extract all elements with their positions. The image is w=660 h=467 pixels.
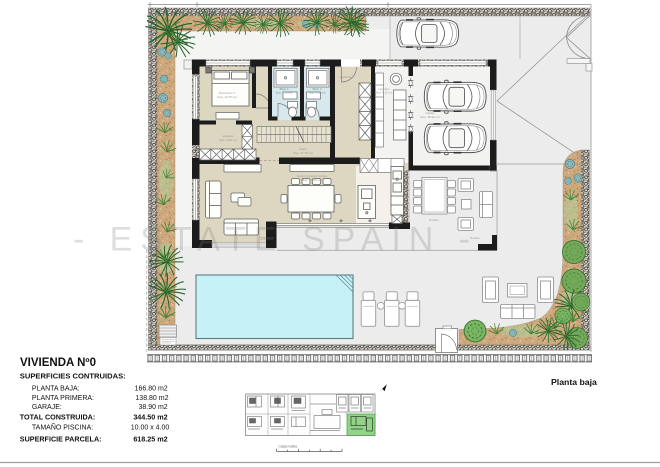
svg-text:Sup. 38.90 m2: Sup. 38.90 m2: [420, 115, 440, 119]
svg-text:TAMAÑO PISCINA:: TAMAÑO PISCINA:: [32, 422, 93, 431]
svg-text:618.25 m2: 618.25 m2: [133, 435, 167, 444]
svg-text:TOTAL CONSTRUIDA:: TOTAL CONSTRUIDA:: [20, 412, 95, 421]
svg-text:Sup. 13.75 m2: Sup. 13.75 m2: [217, 95, 237, 99]
svg-text:PLANTA PRIMERA:: PLANTA PRIMERA:: [32, 395, 94, 402]
svg-text:Planta baja: Planta baja: [551, 377, 597, 387]
svg-text:Sup. 27.75 m2: Sup. 27.75 m2: [293, 151, 313, 155]
svg-text:138.80 m2: 138.80 m2: [135, 395, 168, 402]
svg-text:166.80 m2: 166.80 m2: [135, 386, 168, 393]
svg-text:Sup. 4.70 m2: Sup. 4.70 m2: [276, 91, 293, 95]
svg-text:Sup. 6.10 m2: Sup. 6.10 m2: [376, 91, 393, 95]
svg-text:344.50 m2: 344.50 m2: [133, 412, 167, 421]
svg-text:Sup. 6.90 m2: Sup. 6.90 m2: [219, 138, 237, 142]
svg-text:10.00 x 4.00: 10.00 x 4.00: [131, 424, 170, 431]
svg-text:Sup. 49.95 m2: Sup. 49.95 m2: [302, 178, 322, 182]
svg-text:GARAJE:: GARAJE:: [32, 404, 62, 411]
svg-text:PLANTA BAJA:: PLANTA BAJA:: [32, 386, 80, 393]
svg-text:- ESTATE SPAIN -: - ESTATE SPAIN -: [73, 221, 475, 259]
svg-text:VIVIENDA Nº0: VIVIENDA Nº0: [20, 357, 96, 369]
svg-text:SUPERFICIES CONTRUIDAS:: SUPERFICIES CONTRUIDAS:: [20, 371, 126, 380]
svg-text:Sup. 4.50 m2: Sup. 4.50 m2: [309, 91, 326, 95]
svg-text:Casas Golba: Casas Golba: [279, 445, 298, 449]
svg-text:Recibidor: Recibidor: [340, 75, 353, 79]
svg-text:SUPERFICIE PARCELA:: SUPERFICIE PARCELA:: [20, 435, 102, 444]
svg-text:38.90 m2: 38.90 m2: [139, 404, 168, 411]
